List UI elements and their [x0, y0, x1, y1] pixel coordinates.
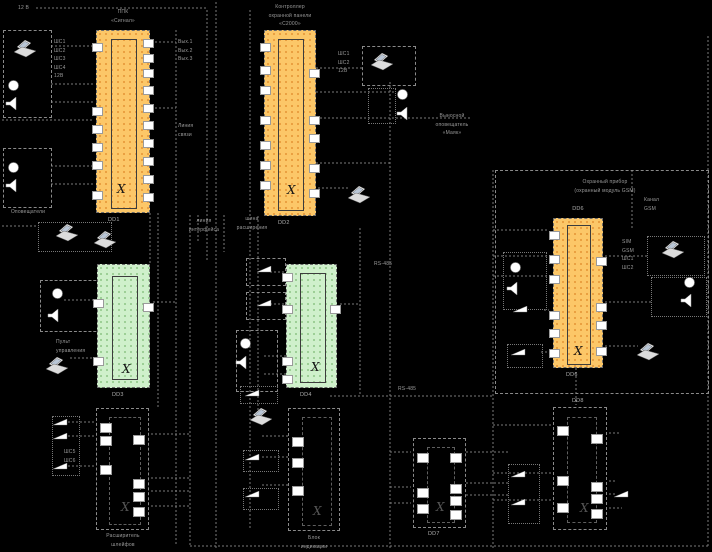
- door-contact-icon: [53, 433, 68, 440]
- chip-dd4: Χ: [286, 264, 337, 388]
- pin: [133, 435, 145, 445]
- pin: [450, 510, 462, 520]
- module-a-caption: Расширитель шлейфов: [88, 532, 158, 549]
- pin: [143, 39, 154, 48]
- pin: [260, 141, 271, 150]
- control-panel-label: Пульт управления: [56, 338, 85, 355]
- laptop-icon: [637, 343, 659, 361]
- pin: [92, 125, 103, 134]
- group-box-gsm-annunciator: [651, 277, 707, 317]
- crystal-icon: Χ: [287, 184, 296, 196]
- pin: [260, 66, 271, 75]
- pin: [450, 484, 462, 494]
- pin: [309, 134, 320, 143]
- loops-list: ШС1 ШС2 ШС3 ШС4 12В: [54, 38, 66, 81]
- pin: [92, 43, 103, 52]
- pin: [92, 143, 103, 152]
- pin: [292, 437, 304, 447]
- door-contact-icon: [245, 454, 260, 461]
- pin: [596, 321, 607, 330]
- pin: [282, 357, 293, 366]
- chip-dd3-designator: DD3: [112, 391, 124, 400]
- pin: [417, 453, 429, 463]
- chip-dd1: Χ: [96, 30, 150, 213]
- speaker-icon: [47, 309, 60, 323]
- pin: [143, 175, 154, 184]
- pin: [260, 86, 271, 95]
- led-icon: [509, 261, 522, 274]
- speaker-icon: [680, 294, 693, 308]
- rs485-mid-label: RS-485: [374, 260, 392, 269]
- door-contact-icon: [245, 390, 260, 397]
- comm-line-label: Линия связи: [178, 122, 193, 139]
- gsm-list: SIM GSM ШС1 ШС2: [622, 238, 634, 272]
- pin: [330, 305, 341, 314]
- loops-bottom-list: ШС5 ШС6: [64, 448, 76, 465]
- pin: [450, 496, 462, 506]
- door-contact-icon: [513, 306, 528, 313]
- module-c: Χ: [413, 438, 466, 528]
- crystal-icon: Χ: [436, 501, 445, 513]
- group-box-gsm-contact: [507, 344, 543, 368]
- pin: [100, 436, 112, 446]
- led-icon: [51, 287, 64, 300]
- power-label: 12 В: [18, 4, 29, 13]
- gsm-channel-label: Канал GSM: [644, 196, 659, 213]
- pin: [309, 116, 320, 125]
- laptop-icon: [250, 408, 272, 426]
- crystal-icon: Χ: [121, 501, 130, 513]
- pin: [143, 193, 154, 202]
- chip-dd6: Χ: [553, 218, 603, 368]
- pin: [93, 357, 104, 366]
- pin: [309, 189, 320, 198]
- pin: [93, 299, 104, 308]
- speaker-icon: [506, 282, 519, 296]
- pin: [143, 86, 154, 95]
- pin: [92, 161, 103, 170]
- laptop-icon: [56, 224, 78, 242]
- mayak-label: Выносной оповещатель «Маяк»: [420, 112, 484, 138]
- door-contact-icon: [614, 491, 629, 498]
- crystal-icon: Χ: [117, 183, 126, 195]
- pin: [133, 507, 145, 517]
- led-icon: [683, 276, 696, 289]
- pin: [100, 423, 112, 433]
- speaker-icon: [235, 356, 248, 370]
- pin: [591, 434, 603, 444]
- pin: [282, 273, 293, 282]
- chip-dd6-designator: DD6: [543, 205, 613, 214]
- pin: [417, 488, 429, 498]
- chip-dd4-designator: DD4: [300, 391, 312, 400]
- group-box-outputs-top: [368, 88, 396, 124]
- led-icon: [7, 79, 20, 92]
- speaker-icon: [5, 97, 18, 111]
- door-contact-icon: [257, 300, 272, 307]
- module-b: Χ: [288, 408, 340, 531]
- chip-dd2-designator: DD2: [278, 219, 290, 228]
- pin: [591, 482, 603, 492]
- chip-dd1-title: ППК «Сигнал»: [90, 8, 156, 25]
- chip-dd6-designator-bottom: DD6: [566, 371, 578, 380]
- pin: [309, 164, 320, 173]
- led-icon: [7, 161, 20, 174]
- led-icon: [396, 88, 409, 101]
- pin: [133, 492, 145, 502]
- pin: [260, 43, 271, 52]
- door-contact-icon: [511, 349, 526, 356]
- led-icon: [239, 337, 252, 350]
- pin: [292, 458, 304, 468]
- bus-a-label: линия интерфейса: [184, 217, 224, 234]
- pin: [549, 349, 560, 358]
- door-contact-icon: [511, 471, 526, 478]
- pin: [309, 69, 320, 78]
- pin: [557, 426, 569, 436]
- speaker-icon: [396, 107, 409, 121]
- crystal-icon: Χ: [580, 502, 589, 514]
- chip-dd2: Χ: [264, 30, 316, 216]
- pin: [549, 329, 560, 338]
- outputs-list: Вых.1 Вых.2 Вых.3: [178, 38, 193, 64]
- module-c-designator: DD7: [428, 530, 440, 539]
- chip-dd1-designator: DD1: [108, 216, 120, 225]
- laptop-icon: [348, 186, 370, 204]
- module-a: Χ: [96, 408, 149, 530]
- module-b-caption: Блок индикации: [282, 534, 346, 551]
- pin: [557, 503, 569, 513]
- door-contact-icon: [257, 266, 272, 273]
- pin: [549, 275, 560, 284]
- pin: [596, 257, 607, 266]
- pin: [591, 494, 603, 504]
- laptop-icon: [14, 40, 36, 58]
- pin: [596, 303, 607, 312]
- pin: [260, 116, 271, 125]
- pin: [450, 453, 462, 463]
- door-contact-icon: [53, 419, 68, 426]
- pin: [92, 107, 103, 116]
- schematic-canvas: Χ Χ Χ Χ: [0, 0, 712, 552]
- crystal-icon: Χ: [574, 345, 583, 357]
- pin: [143, 104, 154, 113]
- laptop-icon: [371, 53, 393, 71]
- pin: [282, 305, 293, 314]
- pin: [549, 255, 560, 264]
- pin: [549, 311, 560, 320]
- group-box-annunciators: [3, 148, 52, 208]
- crystal-icon: Χ: [311, 361, 320, 373]
- pin: [596, 347, 607, 356]
- pin: [260, 181, 271, 190]
- pin: [260, 161, 271, 170]
- pin: [557, 476, 569, 486]
- laptop-icon: [94, 231, 116, 249]
- pin: [417, 504, 429, 514]
- laptop-icon: [46, 357, 68, 375]
- pin: [143, 54, 154, 63]
- dd2-loops-list: ШС1 ШС2 12В: [338, 50, 350, 76]
- speaker-icon: [5, 179, 18, 193]
- pin: [100, 465, 112, 475]
- pin: [143, 139, 154, 148]
- pin: [143, 303, 154, 312]
- door-contact-icon: [511, 499, 526, 506]
- crystal-icon: Χ: [313, 505, 322, 517]
- chip-dd3: Χ: [97, 264, 150, 388]
- pin: [133, 479, 145, 489]
- pin: [143, 121, 154, 130]
- crystal-icon: Χ: [122, 363, 131, 375]
- laptop-icon: [662, 241, 684, 259]
- gsm-module-title: Охранный прибор (охранный модуль GSM): [525, 178, 685, 195]
- module-d: Χ: [553, 407, 607, 530]
- annunciators-label: Оповещатели: [2, 208, 54, 217]
- bus-b-label: шина расширения: [230, 215, 274, 232]
- pin: [92, 191, 103, 200]
- pin: [143, 69, 154, 78]
- pin: [591, 509, 603, 519]
- pin: [282, 375, 293, 384]
- door-contact-icon: [245, 491, 260, 498]
- pin: [143, 157, 154, 166]
- pin: [292, 486, 304, 496]
- module-d-designator: DD8: [572, 397, 584, 406]
- chip-dd2-title: Контроллер охранной панели «С2000»: [240, 3, 340, 29]
- pin: [549, 231, 560, 240]
- rs485-bottom-label: RS-485: [398, 385, 416, 394]
